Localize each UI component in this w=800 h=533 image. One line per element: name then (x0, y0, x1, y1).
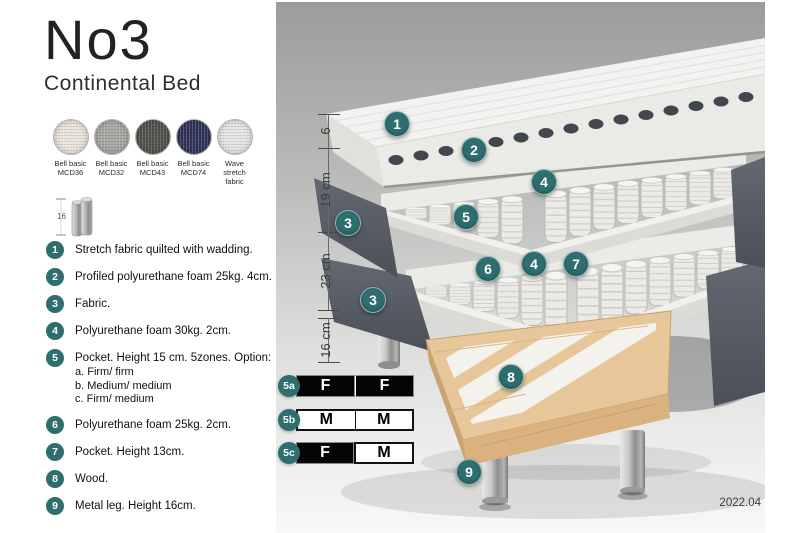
fabric-swatch-circle (135, 119, 171, 155)
callout-7-base-pocket: 7 (563, 251, 589, 277)
legend-text: Fabric. (75, 295, 110, 311)
legend-item: 5 Pocket. Height 15 cm. 5zones. Option: … (46, 349, 272, 407)
legend-text: Profiled polyurethane foam 25kg. 4cm. (75, 268, 272, 284)
legend-item: 6 Polyurethane foam 25kg. 2cm. (46, 416, 272, 434)
firmness-cell: F (296, 442, 354, 464)
pocket-option-b: b. Medium/ medium (75, 380, 271, 394)
legend-item: 2 Profiled polyurethane foam 25kg. 4cm. (46, 268, 272, 286)
legend-text: Wood. (75, 470, 108, 486)
legend-item: 8 Wood. (46, 470, 272, 488)
pocket-option-c: c. Firm/ medium (75, 393, 271, 407)
firmness-bar-5b: M M (296, 409, 414, 431)
legend-text: Pocket. Height 15 cm. 5zones. Option: a.… (75, 349, 271, 407)
swatch-label-line1: Bell basic (50, 159, 91, 168)
firmness-bar-5c: F M (296, 442, 414, 464)
callout-4-upper-foam: 4 (531, 169, 557, 195)
legend-number-badge: 9 (46, 497, 64, 515)
swatch-item: Wave stretch fabric (214, 119, 255, 186)
leg-height-icon: 16 (50, 190, 102, 247)
callout-6-base-foam: 6 (475, 256, 501, 282)
swatch-label-line1: Bell basic (173, 159, 214, 168)
legend-item: 9 Metal leg. Height 16cm. (46, 497, 272, 515)
legend-number-badge: 5 (46, 349, 64, 367)
fabric-swatches: Bell basic MCD36 Bell basic MCD32 Bell b… (50, 119, 255, 186)
swatch-label-line2: MCD32 (91, 168, 132, 177)
legend-item: 3 Fabric. (46, 295, 272, 313)
legend-number-badge: 4 (46, 322, 64, 340)
product-subtitle: Continental Bed (44, 72, 201, 96)
firmness-cell: M (354, 442, 414, 464)
swatch-label-line2: stretch fabric (214, 168, 255, 186)
callout-2-profiled-foam: 2 (461, 137, 487, 163)
firmness-badge-5b: 5b (278, 409, 300, 431)
legend-number-badge: 6 (46, 416, 64, 434)
dimension-label-base: 23 cm (318, 236, 334, 306)
firmness-cell: M (296, 409, 355, 431)
product-title: No3 (44, 10, 201, 70)
pocket-options: a. Firm/ firm b. Medium/ medium c. Firm/… (75, 366, 271, 407)
callout-9-metal-leg: 9 (456, 459, 482, 485)
parts-legend: 1 Stretch fabric quilted with wadding. 2… (46, 241, 272, 524)
callout-1-stretch-fabric: 1 (384, 111, 410, 137)
dimension-label-upper-mattress: 19 cm (318, 155, 334, 225)
swatch-item: Bell basic MCD36 (50, 119, 91, 186)
swatch-item: Bell basic MCD43 (132, 119, 173, 186)
fabric-swatch-circle (217, 119, 253, 155)
fabric-swatch-circle (94, 119, 130, 155)
callout-5-pocket-spring: 5 (453, 204, 479, 230)
product-sheet: No3 Continental Bed Bell basic MCD36 Bel… (0, 0, 800, 533)
swatch-label-line1: Bell basic (132, 159, 173, 168)
legend-number-badge: 7 (46, 443, 64, 461)
legend-text: Polyurethane foam 25kg. 2cm. (75, 416, 231, 432)
firmness-cell: M (355, 409, 415, 431)
legend-number-badge: 8 (46, 470, 64, 488)
dimension-tick (318, 232, 340, 233)
legend-item: 1 Stretch fabric quilted with wadding. (46, 241, 272, 259)
diagram-panel: 6 19 cm 23 cm 16 cm 1 2 4 3 5 4 6 3 7 8 … (276, 2, 765, 533)
callout-4-lower-foam: 4 (521, 251, 547, 277)
firmness-badge-5a: 5a (278, 375, 300, 397)
dimension-label-leg: 16 cm (318, 305, 334, 375)
swatch-label-line1: Wave (214, 159, 255, 168)
swatch-item: Bell basic MCD32 (91, 119, 132, 186)
fabric-swatch-circle (53, 119, 89, 155)
metal-leg-right (618, 430, 648, 500)
legend-text: Pocket. Height 13cm. (75, 443, 184, 459)
version-date: 2022.04 (719, 497, 761, 509)
swatch-label-line2: MCD74 (173, 168, 214, 177)
legend-text: Polyurethane foam 30kg. 2cm. (75, 322, 231, 338)
legend-item: 7 Pocket. Height 13cm. (46, 443, 272, 461)
swatch-item: Bell basic MCD74 (173, 119, 214, 186)
callout-8-wood: 8 (498, 364, 524, 390)
legend-number-badge: 1 (46, 241, 64, 259)
legend-number-badge: 2 (46, 268, 64, 286)
firmness-cell: F (296, 375, 355, 397)
swatch-label-line2: MCD36 (50, 168, 91, 177)
firmness-bar-5a: F F (296, 375, 414, 397)
firmness-cell: F (355, 375, 414, 397)
callout-3-fabric-upper: 3 (335, 210, 361, 236)
swatch-label-line1: Bell basic (91, 159, 132, 168)
legend-text: Metal leg. Height 16cm. (75, 497, 196, 513)
leg-height-value: 16 (57, 212, 66, 221)
fabric-swatch-circle (176, 119, 212, 155)
legend-text: Stretch fabric quilted with wadding. (75, 241, 253, 257)
firmness-badge-5c: 5c (278, 442, 300, 464)
legend-number-badge: 3 (46, 295, 64, 313)
pocket-option-a: a. Firm/ firm (75, 366, 271, 380)
legend-text-main: Pocket. Height 15 cm. 5zones. Option: (75, 352, 271, 364)
legend-item: 4 Polyurethane foam 30kg. 2cm. (46, 322, 272, 340)
swatch-label-line2: MCD43 (132, 168, 173, 177)
callout-3-fabric-lower: 3 (360, 287, 386, 313)
title-block: No3 Continental Bed (44, 10, 201, 96)
info-column: No3 Continental Bed Bell basic MCD36 Bel… (0, 0, 276, 533)
